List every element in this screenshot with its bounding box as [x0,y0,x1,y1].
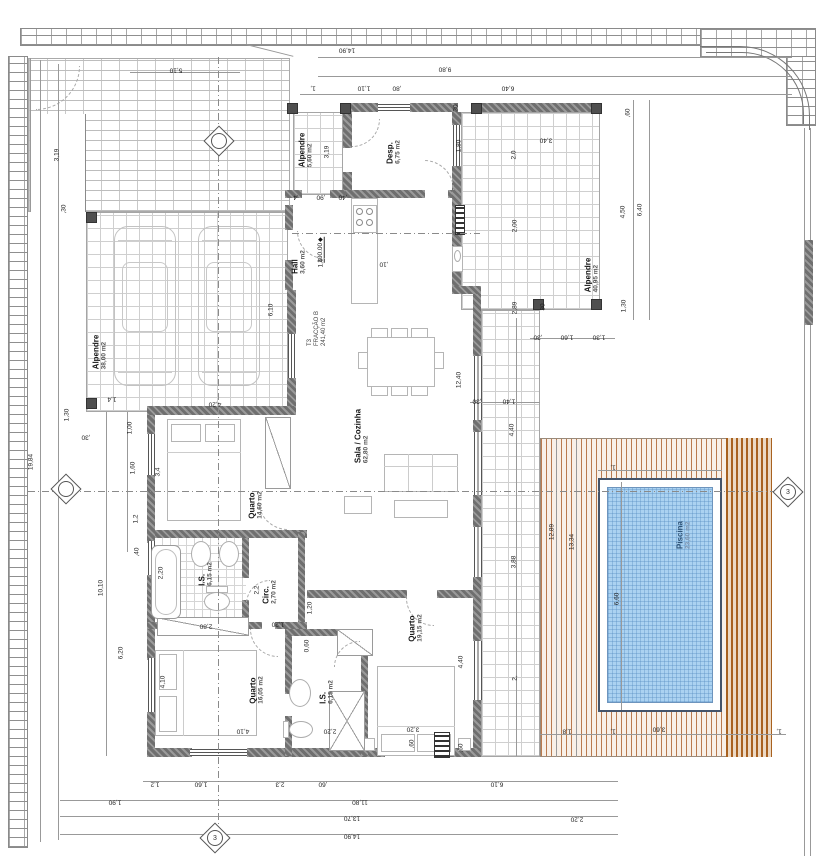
chair [434,352,444,369]
unit-fraction: FRACÇÃO B [314,311,321,346]
room-label: Quarto19,15 m2 [408,614,425,641]
window [148,658,155,712]
wall-segment [285,629,341,636]
dimension-label: 2,20 [158,567,165,580]
dimension-label: ,40 [134,547,141,556]
dimension-label: 6,60 [614,593,621,606]
wall-segment [242,538,249,578]
column-post [86,212,97,223]
boundary-line-diagonal [247,44,294,57]
dimension-label: 1,4 [107,396,116,403]
dimension-label: 1,90 [109,799,122,806]
dimension-label: 1, [310,85,315,92]
stove-burner [366,219,373,226]
dimension-label: 2,80 [200,623,213,630]
dimension-label: ,4 [293,194,298,201]
section-marker-circle: 3 [780,484,796,500]
dimension-label: 4,40 [458,656,465,669]
sofa [384,454,458,492]
column-post [471,103,482,114]
pillow [159,696,177,732]
dimension-label: 6,40 [502,85,515,92]
bathtub-inner [155,549,177,615]
room-label: Alpendre5,60 m2 [298,133,315,168]
dimension-label: 1,30 [621,300,628,313]
dimension-label: 13,34 [569,534,576,550]
dimension-line [292,233,480,234]
wardrobe [265,417,291,489]
forecourt-edge [30,58,31,212]
wall-segment [452,286,481,294]
dimension-label: 1,20 [307,602,314,615]
bidet [219,541,239,567]
sofa-line [408,454,409,492]
dimension-label: 1,60 [561,334,574,341]
pool-deck-dark [726,438,772,757]
dimension-label: ,90 [316,194,325,201]
stove-burner [356,219,363,226]
window [474,641,482,700]
dimension-label: ,10 [379,261,388,268]
room-name: I.S. [319,680,328,704]
dimension-label: 30 [453,104,460,111]
dimension-line [218,56,219,848]
dimension-label: 10,10 [98,580,105,596]
column-post [287,103,298,114]
dimension-line [598,470,722,471]
room-name: Desp. [386,140,395,164]
dimension-label: 2, [512,675,519,680]
dimension-line [556,440,557,757]
dimension-label: 1,30 [64,409,71,422]
wall-segment [147,748,192,757]
room-label: Quarto14,60 m2 [248,491,265,518]
window [288,334,295,378]
dimension-label: 1,80 [456,140,463,153]
room-area: 5,60 m2 [307,133,315,168]
dimension-label: 6,40 [637,204,644,217]
room-name: Alpendre [298,133,307,168]
room-area: 2,70 m2 [271,580,279,604]
dimension-label: 4,50 [620,206,627,219]
room-label: Hall3,60 m2 [291,250,308,274]
column-post [591,299,602,310]
section-marker-circle [58,481,74,497]
car-line [118,240,172,241]
dimension-label: 2,3 [275,781,284,788]
boundary-line-right-a [804,128,805,856]
dimension-label: 4,20 [209,401,222,408]
room-name: Circ. [262,580,271,604]
room-area: 19,15 m2 [417,614,425,641]
room-area: 14,60 m2 [257,491,265,518]
doormat-steps [434,732,450,758]
wall-segment [287,290,296,334]
wall-segment [298,532,305,628]
washbasin [289,679,311,707]
pool-water [607,487,713,703]
room-area: 40,95 m2 [593,258,601,293]
dimension-label: 1, [610,728,615,735]
dimension-label: 1,30 [593,334,606,341]
dimension-label: 1,8 [562,728,571,735]
room-label: Desp.6,75 m2 [386,140,403,164]
room-name: Piscina [676,521,685,549]
boundary-wall-left [8,56,28,848]
dimension-label: 1,20 [272,621,285,628]
dimension-line [516,318,517,756]
dimension-label: 14,90 [344,833,360,840]
dimension-line [60,834,618,835]
window [378,104,410,111]
dimension-line [318,57,792,58]
window [474,527,482,577]
pillow [205,424,235,442]
dimension-label: 12,40 [456,372,463,388]
chair [371,386,388,396]
chair [371,328,388,338]
dimension-line [130,72,240,73]
sofa-line [432,454,433,492]
dimension-label: ,40 [338,194,347,201]
dimension-label: 6,10 [491,781,504,788]
room-area: 62,80 m2 [363,409,371,463]
toilet [289,721,313,738]
dimension-label: ,30 [472,398,481,405]
wall-segment [805,240,813,325]
dimension-label: 9,80 [439,66,452,73]
dimension-label: 1,00 [127,422,134,435]
wall-segment [473,420,481,432]
car-cabin [122,262,168,332]
car-cabin [206,262,252,332]
wall-segment [473,294,481,356]
dimension-label: 1,60 [195,781,208,788]
column-post [86,398,97,409]
sofa-line [384,466,458,467]
bed-line [167,452,241,453]
room-label: Alpendre40,95 m2 [584,258,601,293]
room-label: Sala / Cozinha62,80 m2 [354,409,371,463]
door-swing-arc [352,119,380,147]
dimension-label: 3,88 [511,556,518,569]
dimension-line [576,440,577,757]
dimension-label: 4,10 [160,676,167,689]
dimension-label: ,60 [625,108,632,117]
car-line [202,372,256,373]
dimension-label: 11,80 [352,799,368,806]
room-area: 6,15 m2 [328,680,336,704]
wall-segment [155,530,247,538]
wall-segment [410,103,458,112]
dimension-label: 1, [610,464,615,471]
dimension-line [633,100,634,320]
dimension-label: 12,89 [549,524,556,540]
wall-segment [452,112,461,125]
dimension-label: 2,0 [511,150,518,159]
dimension-line [58,64,59,840]
chair [391,386,408,396]
room-label: Piscina23,60 m2 [676,521,693,549]
toilet [204,592,230,611]
dimension-label: 1,6 [318,258,325,267]
dimension-label: 3,4 [155,467,162,476]
column-post [591,103,602,114]
unit-fraction-label: T3 FRACÇÃO B 241,40 m2 [307,311,328,346]
room-name: Quarto [408,614,417,641]
dimension-label: ,60 [318,781,327,788]
room-area: 6,15 m2 [207,562,215,586]
room-name: Alpendre [584,258,593,293]
dimension-label: 2,89 [512,302,519,315]
dimension-label: 3,20 [407,726,420,733]
stove-burner [366,208,373,215]
room-label: I.S.6,15 m2 [319,680,336,704]
wall-segment [473,495,481,527]
boundary-line-right-b [810,128,811,856]
pillow [171,424,201,442]
dimension-label: ,30 [81,434,90,441]
dimension-line [621,482,622,710]
boundary-wall-top [20,28,816,46]
room-name: Hall [291,250,300,274]
wall-segment [437,590,481,598]
dimension-label: 3,19 [324,146,331,159]
chair [411,386,428,396]
chair [411,328,428,338]
door-swing-arc [424,160,454,190]
dimension-label: 1,2 [133,514,140,523]
dining-table [367,337,435,387]
dimension-label: 1,2 [150,781,159,788]
dimension-label: 3,60 [653,726,666,733]
room-area: 23,60 m2 [685,521,693,549]
column-post [340,103,351,114]
dimension-label: 4,10 [237,728,250,735]
dimension-label: 2,20 [571,816,584,823]
dimension-label: 1,60 [130,462,137,475]
floor-plan-canvas: T3 FRACÇÃO B 241,40 m2 100.00 Alpendre38… [0,0,816,856]
dimension-line [106,412,107,756]
wall-segment [147,415,155,434]
dimension-label: 19,84 [28,454,35,470]
dimension-label: ,30 [533,334,542,341]
dimension-label: 2,00 [512,220,519,233]
section-marker-circle [211,133,227,149]
dimension-line [60,816,618,817]
dimension-label: 3,19 [54,149,61,162]
room-name: Alpendre [92,335,101,370]
section-marker-circle: 3 [207,830,223,846]
room-label: Quarto16,05 m2 [249,676,266,703]
dimension-label: ,80 [392,85,401,92]
room-name: Sala / Cozinha [354,409,363,463]
wall-segment [307,590,407,598]
dimension-label: 6,10 [268,304,275,317]
wall-segment [473,577,481,641]
dimension-line [143,781,618,782]
dimension-label: 6,20 [118,647,125,660]
wall-segment [285,205,293,230]
chair [358,352,368,369]
dimension-line [40,60,41,842]
armchair [344,496,372,514]
coffee-table [394,500,448,518]
terrace-paving [461,112,600,310]
room-label: I.S.6,15 m2 [198,562,215,586]
dimension-line [649,100,650,320]
dimension-label: 1,40 [503,398,516,405]
car-line [202,240,256,241]
dimension-label: 4,40 [509,424,516,437]
dimension-label: 2,20 [324,728,337,735]
window [474,356,482,420]
stove-burner [356,208,363,215]
room-area: 38,00 m2 [101,335,109,370]
wall-segment [287,378,296,408]
appliance-column [455,205,465,235]
wall-segment [147,406,296,415]
dimension-line [300,94,792,95]
wall-segment [480,103,602,112]
room-name: Quarto [249,676,258,703]
window [474,432,482,495]
dimension-label: 30 [540,303,547,310]
dimension-label: 13,70 [344,815,360,822]
wall-segment [345,190,425,198]
room-area: 6,75 m2 [395,140,403,164]
room-name: I.S. [198,562,207,586]
sink-basin [454,250,461,262]
dimension-label: 3,40 [540,137,553,144]
dimension-label: ,30 [61,204,68,213]
dimension-label: ,60 [458,743,465,752]
wall-segment [343,112,352,148]
dimension-label: ,60 [409,739,416,748]
room-area: 3,60 m2 [300,250,308,274]
wall-segment [147,475,155,543]
dimension-label: 0,60 [304,640,311,653]
room-name: Quarto [248,491,257,518]
dimension-label: 5,10 [170,67,183,74]
room-area: 16,05 m2 [258,676,266,703]
dimension-label: 1, [776,728,781,735]
dimension-line [28,491,800,492]
unit-type: T3 [307,311,314,346]
unit-area: 241,40 m2 [321,311,328,346]
east-walkway-paving [481,310,540,757]
car-line [118,372,172,373]
dimension-label: 1,10 [358,85,371,92]
dimension-line [540,734,786,735]
dimension-label: 2,2 [254,585,261,594]
room-label: Circ.2,70 m2 [262,580,279,604]
dimension-label: 14,90 [339,47,355,54]
room-label: Alpendre38,00 m2 [92,335,109,370]
chair [391,328,408,338]
dimension-line [60,800,618,801]
dimension-line [318,76,792,77]
bed-line [183,650,184,736]
